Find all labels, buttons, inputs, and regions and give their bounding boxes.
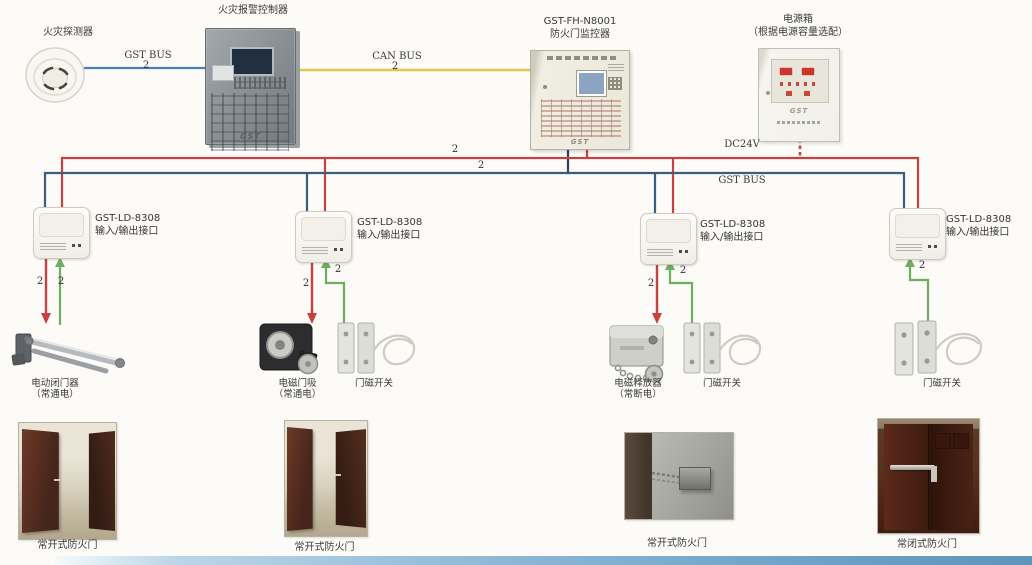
dc24v-count: 2	[448, 144, 462, 155]
controller-screen	[230, 47, 274, 76]
door-magnetic-switch-2	[336, 320, 418, 378]
magnetic-door-holder	[258, 320, 324, 378]
door-4-label: 常闭式防火门	[872, 539, 982, 552]
module-model: GST-LD-8308	[95, 212, 160, 225]
gst-bus-top-count: 2	[139, 60, 153, 71]
door-photo-3	[624, 432, 734, 520]
controller-indicators	[234, 77, 286, 89]
wire-gst-bus-main	[45, 173, 904, 208]
smoke-detector	[24, 45, 88, 107]
module-model: GST-LD-8308	[700, 218, 765, 231]
m2-input-count: 2	[331, 264, 345, 275]
io-module-4-label: GST-LD-8308 输入/输出接口	[946, 213, 1011, 239]
power-button-1	[786, 91, 792, 96]
wire-m3-input	[670, 269, 692, 324]
monitor-logo: GST	[531, 138, 629, 146]
open-door-right	[89, 431, 115, 531]
wire-m2-input	[326, 267, 344, 324]
panic-bar	[890, 465, 934, 471]
wire-m4-input	[910, 266, 928, 322]
door-closer-note: （常通电）	[10, 389, 100, 401]
magnetic-releaser	[606, 318, 678, 382]
module-type: 输入/输出接口	[946, 226, 1011, 239]
monitor-lcd	[577, 71, 606, 96]
monitor-model-label: GST-FH-N8001	[530, 16, 630, 29]
monitor-speaker-dot	[543, 85, 547, 89]
module-microtext	[896, 244, 922, 251]
power-box-note: （根据电源容量选配）	[723, 27, 873, 40]
power-indicator-dots	[780, 82, 820, 86]
door-switch-2-name: 门磁开关	[334, 378, 414, 390]
door-magnetic-switch-3	[682, 320, 764, 378]
can-bus-count: 2	[388, 61, 402, 72]
power-keyhole-dot	[766, 91, 770, 95]
module-microtext	[40, 243, 66, 250]
module-cover	[646, 219, 691, 243]
controller-vents	[211, 93, 289, 151]
dc24v-label: DC24V	[712, 139, 772, 152]
open-door-right	[335, 429, 366, 528]
m1-input-count: 2	[54, 276, 68, 287]
door-magnetic-switch-4	[893, 318, 985, 378]
module-microtext	[302, 247, 328, 254]
io-module-1	[33, 207, 90, 259]
power-led-display-2	[802, 68, 814, 75]
door-1-label: 常开式防火门	[20, 540, 115, 553]
gst-bus-main-count: 2	[474, 160, 488, 171]
module-cover	[301, 217, 346, 241]
io-module-3-label: GST-LD-8308 输入/输出接口	[700, 218, 765, 244]
io-module-2-label: GST-LD-8308 输入/输出接口	[357, 216, 422, 242]
electric-door-closer	[8, 318, 130, 380]
door-2-label: 常开式防火门	[282, 542, 367, 555]
module-type: 输入/输出接口	[700, 231, 765, 244]
module-microtext	[647, 249, 673, 256]
module-led-pair	[928, 245, 931, 248]
module-model: GST-LD-8308	[946, 213, 1011, 226]
monitor-header-text	[547, 56, 619, 60]
door-switch-4-name: 门磁开关	[902, 378, 982, 390]
wire-dc24v-bus	[62, 158, 918, 208]
power-led-display-1	[780, 68, 792, 75]
module-led-pair	[334, 248, 337, 251]
gst-bus-main-label: GST BUS	[710, 175, 774, 188]
door-handle	[54, 479, 61, 481]
module-type: 输入/输出接口	[357, 229, 422, 242]
m2-output-count: 2	[299, 278, 313, 289]
io-module-2	[295, 211, 352, 263]
fire-door-monitor: GST	[530, 50, 630, 150]
module-cover	[895, 214, 940, 238]
power-subtext-line	[777, 121, 821, 124]
monitor-name-label: 防火门监控器	[530, 29, 630, 42]
controller-logo: GST	[206, 132, 295, 141]
open-door-left	[287, 427, 313, 531]
fire-door-monitoring-wiring-diagram: 火灾探测器 火灾报警控制器 GST GST-FH-N8001 防火门监控器 GS…	[0, 0, 1032, 565]
door-photo-4	[877, 418, 980, 534]
module-type: 输入/输出接口	[95, 225, 160, 238]
module-led-pair	[72, 244, 75, 247]
module-led-pair	[679, 250, 682, 253]
monitor-keypad	[608, 77, 622, 90]
m3-output-count: 2	[644, 278, 658, 289]
module-model: GST-LD-8308	[357, 216, 422, 229]
door-panel	[953, 433, 969, 450]
door-3-label: 常开式防火门	[622, 538, 732, 551]
panic-bar-head	[931, 466, 937, 482]
io-module-4	[889, 208, 946, 260]
io-module-1-label: GST-LD-8308 输入/输出接口	[95, 212, 160, 238]
door-handle	[335, 474, 341, 476]
door-holder-note: （常通电）	[255, 389, 340, 401]
power-display-panel	[771, 59, 829, 103]
monitor-indicator-columns	[541, 99, 621, 137]
controller-label-chip	[212, 65, 234, 81]
door-photo-2	[284, 420, 368, 537]
power-button-2	[804, 91, 810, 96]
bottom-decorative-strip	[55, 556, 1032, 565]
controller-label: 火灾报警控制器	[198, 5, 308, 18]
power-box: GST	[758, 48, 840, 142]
fire-alarm-controller: GST	[205, 28, 296, 145]
open-door-left	[22, 429, 59, 533]
io-module-3	[640, 213, 697, 265]
power-box-name: 电源箱	[748, 14, 848, 27]
m4-input-count: 2	[915, 260, 929, 271]
detector-label: 火灾探测器	[18, 27, 118, 40]
door-switch-3-name: 门磁开关	[682, 378, 762, 390]
door-photo-1	[18, 422, 117, 540]
module-cover	[39, 213, 84, 237]
door-panel	[935, 433, 951, 450]
monitor-indicator-strip	[608, 63, 624, 71]
m1-output-count: 2	[33, 276, 47, 287]
chain-to-door	[625, 433, 733, 519]
power-logo: GST	[759, 107, 839, 115]
door-seam	[928, 424, 929, 530]
door-releaser-note: （常断电）	[593, 389, 683, 401]
m3-input-count: 2	[676, 265, 690, 276]
